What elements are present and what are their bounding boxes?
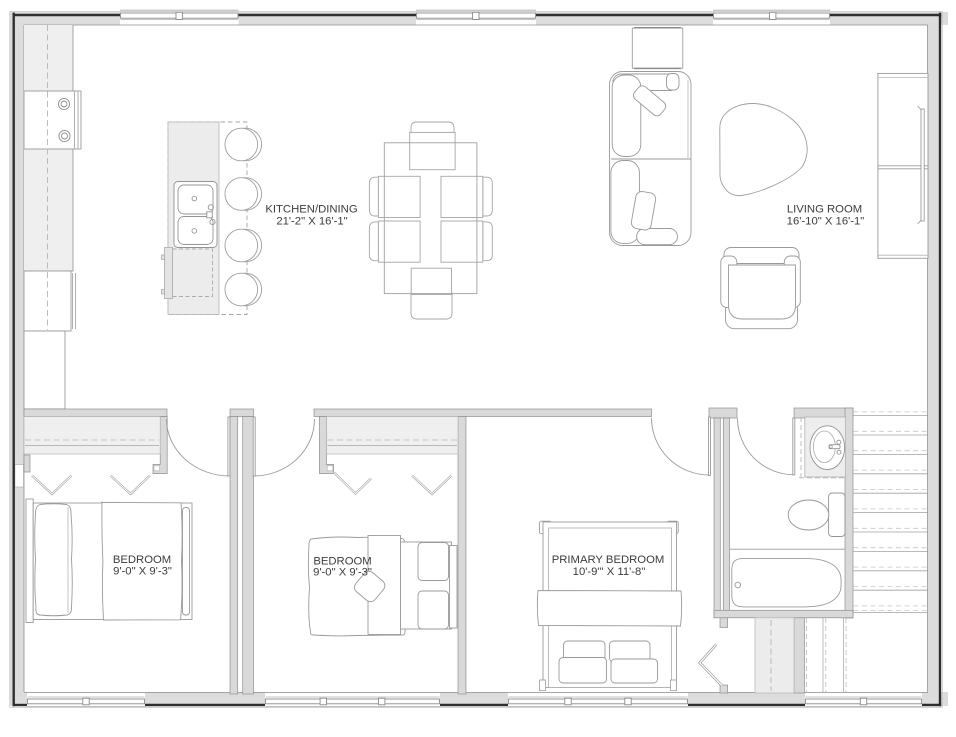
svg-text:9'-0" X 9'-3": 9'-0" X 9'-3" [313, 566, 372, 578]
svg-text:LIVING ROOM: LIVING ROOM [787, 204, 862, 216]
svg-text:21'-2" X 16'-1": 21'-2" X 16'-1" [276, 216, 347, 228]
svg-text:10'-9"' X 11'-8": 10'-9"' X 11'-8" [573, 566, 646, 578]
svg-text:16'-10" X 16'-1": 16'-10" X 16'-1" [787, 216, 865, 228]
svg-text:9'-0" X 9'-3": 9'-0" X 9'-3" [113, 566, 172, 578]
svg-text:KITCHEN/DINING: KITCHEN/DINING [265, 204, 357, 216]
svg-text:BEDROOM: BEDROOM [113, 554, 171, 566]
svg-text:PRIMARY BEDROOM: PRIMARY BEDROOM [552, 554, 665, 566]
